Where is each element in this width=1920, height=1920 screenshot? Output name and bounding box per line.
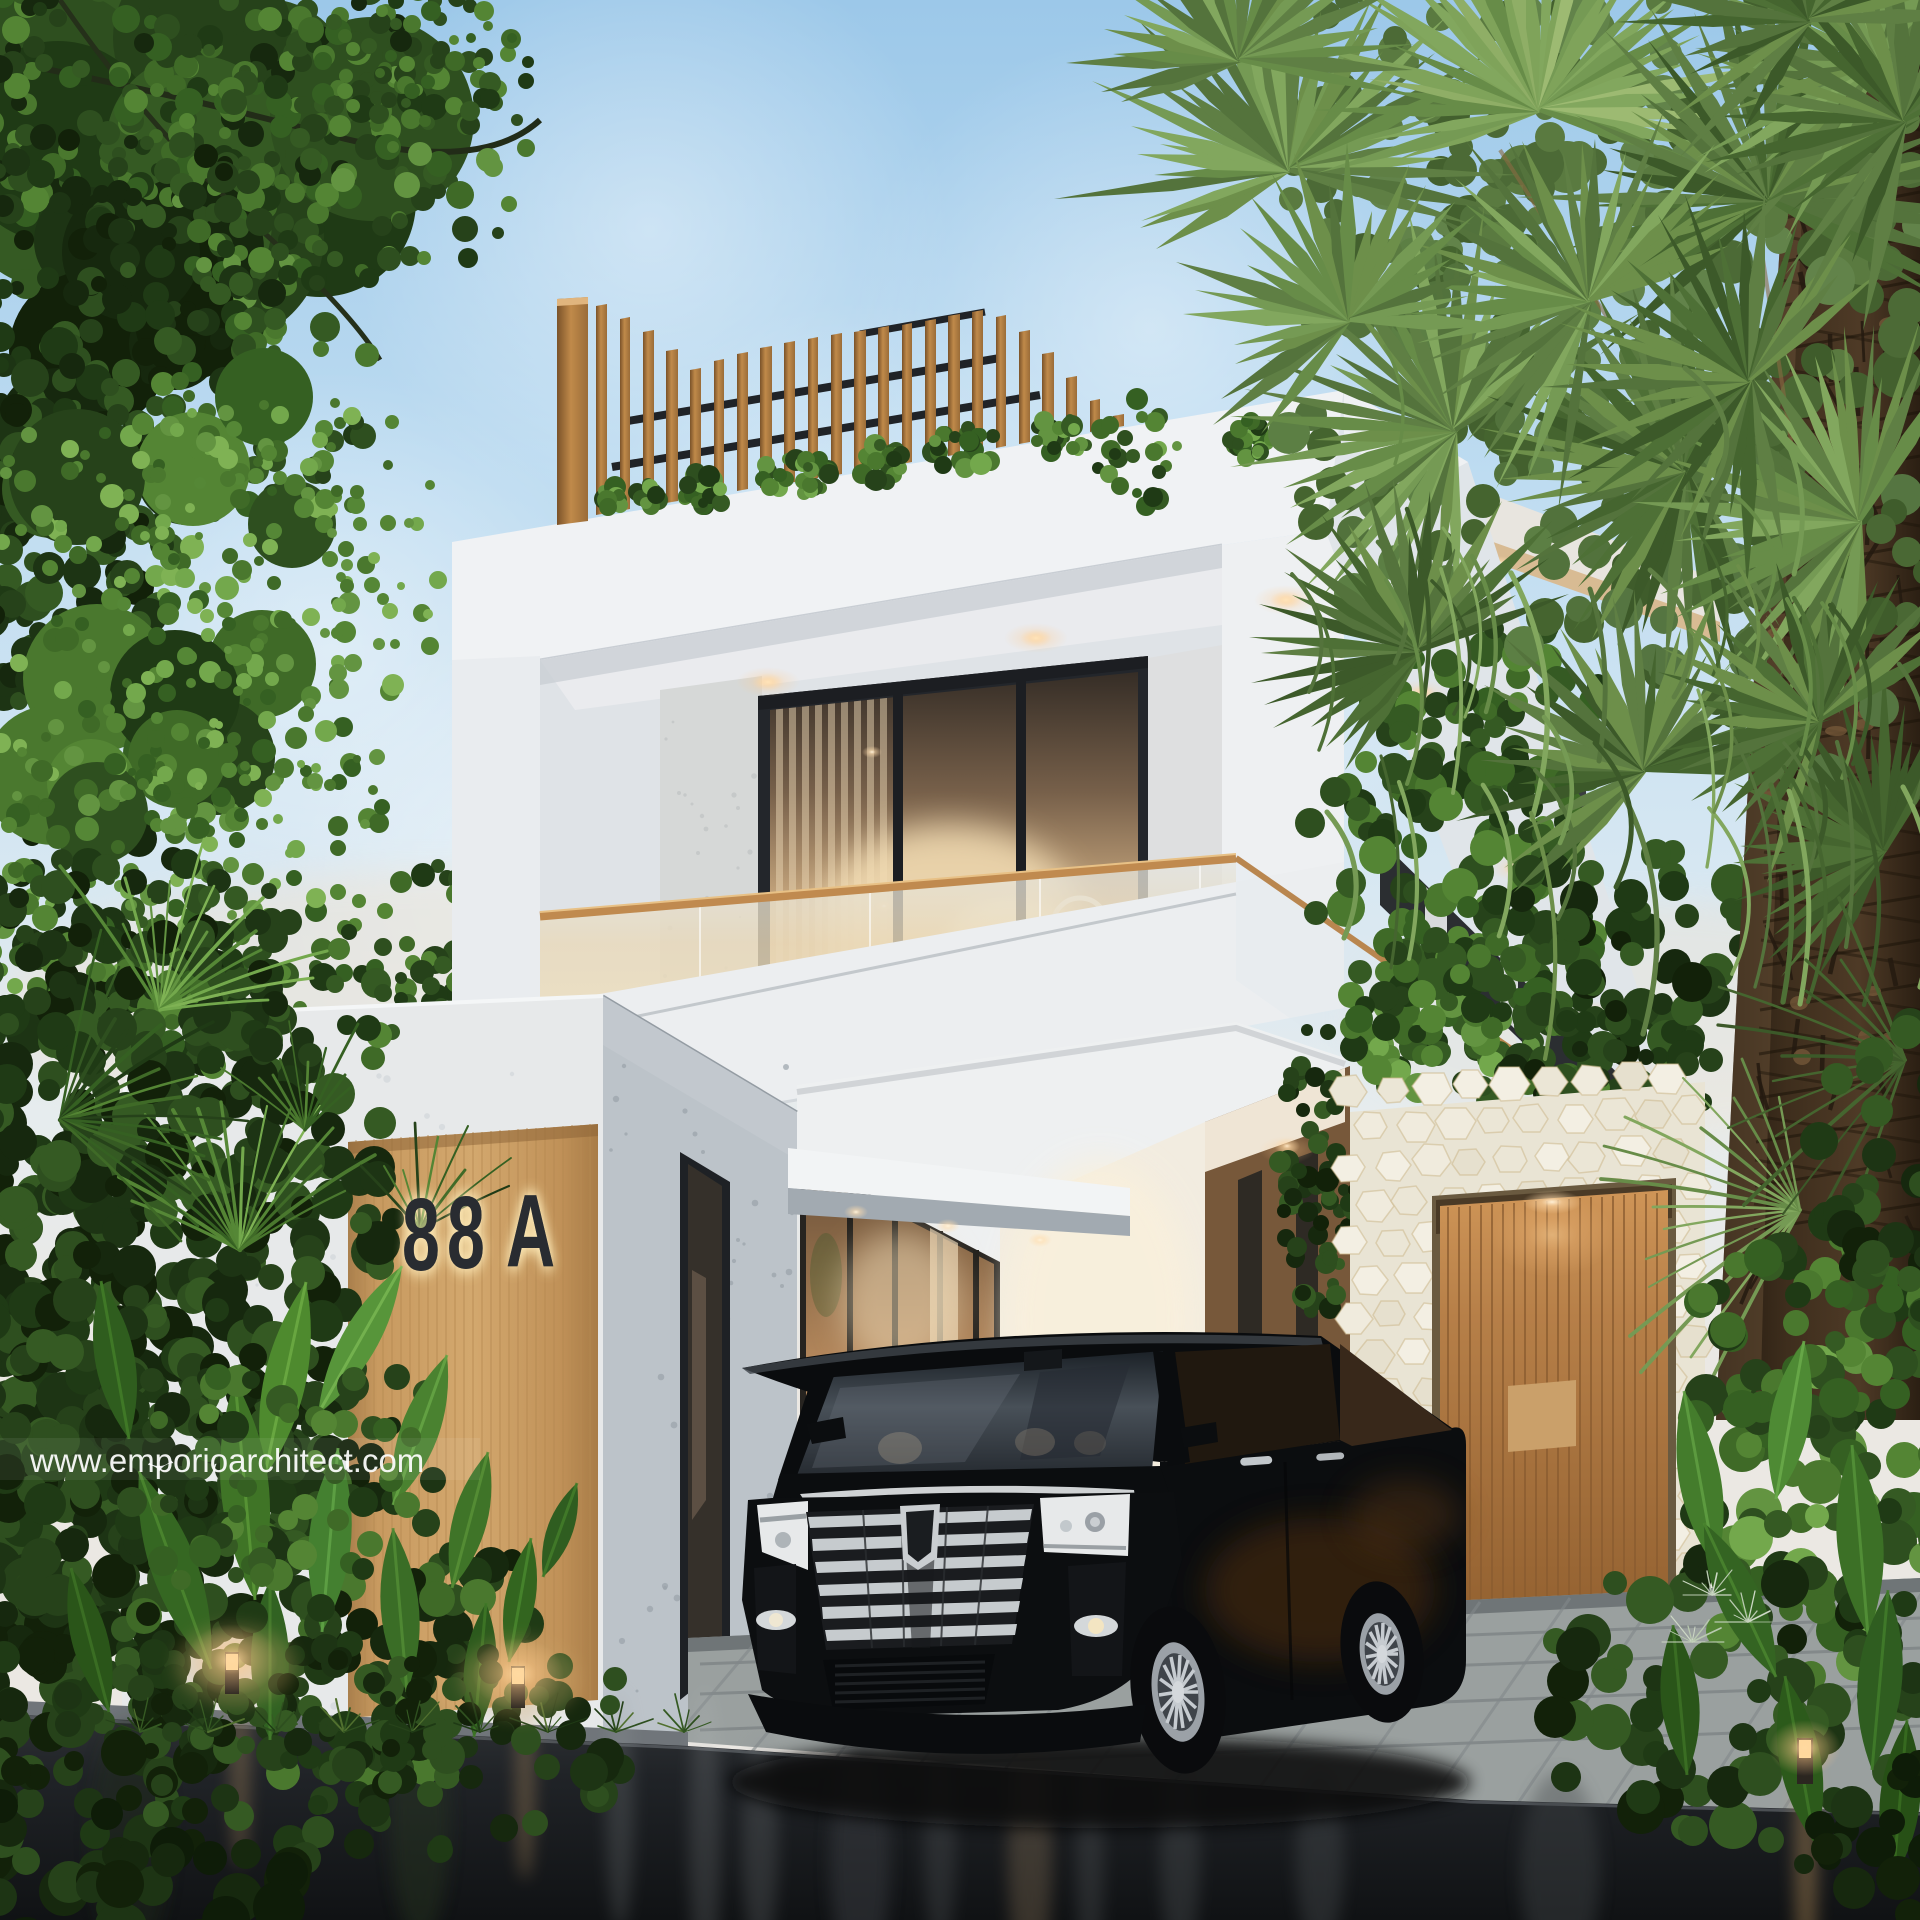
- svg-text:8: 8: [447, 1176, 485, 1290]
- svg-text:www.emporioarchitect.com: www.emporioarchitect.com: [29, 1442, 424, 1479]
- svg-text:A: A: [506, 1174, 555, 1288]
- svg-text:8: 8: [402, 1178, 440, 1292]
